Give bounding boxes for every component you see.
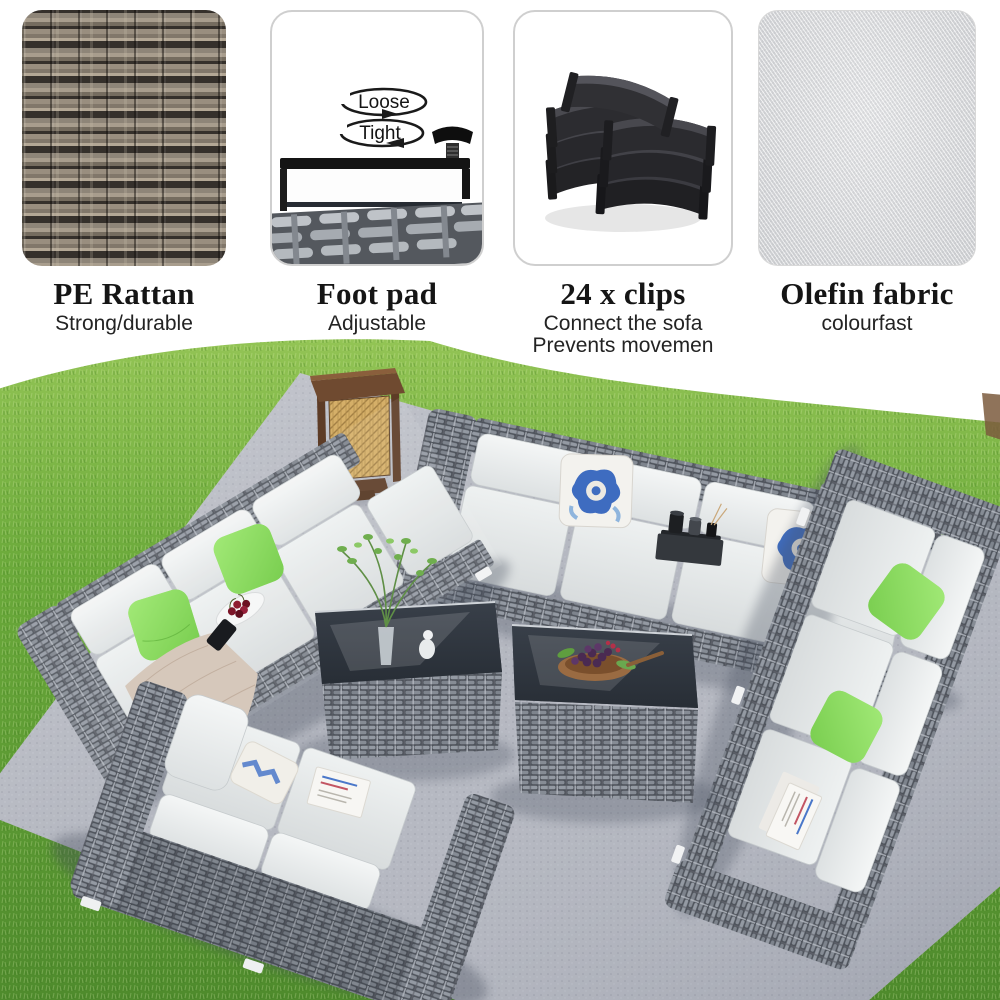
feature-title: Olefin fabric — [758, 278, 976, 309]
feature-title: 24 x clips — [513, 278, 733, 309]
feature-title: Foot pad — [270, 278, 484, 309]
foot-pad-bracket — [280, 158, 470, 211]
loose-label: Loose — [358, 92, 410, 113]
product-infographic: PE Rattan Strong/durable Loose Tight — [0, 0, 1000, 1000]
feature-subtitle: Connect the sofa — [513, 313, 733, 335]
feature-card-clips: 24 x clips Connect the sofa Prevents mov… — [513, 10, 733, 358]
feature-card-pe-rattan: PE Rattan Strong/durable — [22, 10, 226, 335]
feature-subtitle: colourfast — [758, 313, 976, 335]
clip-stack-front — [595, 115, 716, 220]
connector-clips-illustration — [515, 12, 731, 264]
feature-card-foot-pad: Loose Tight — [270, 10, 484, 335]
clips-swatch — [513, 10, 733, 266]
feature-card-olefin: Olefin fabric colourfast — [758, 10, 976, 335]
blue-pattern-pillow — [559, 454, 633, 528]
feature-title: PE Rattan — [22, 278, 226, 309]
patio-scene-photo — [0, 335, 1000, 1000]
tight-label: Tight — [359, 123, 401, 144]
rattan-weave-swatch — [22, 10, 226, 266]
coffee-table-fruit-bowl — [490, 625, 720, 823]
rattan-rail — [272, 202, 482, 264]
feature-subtitle: Adjustable — [270, 313, 484, 335]
foot-pad-swatch: Loose Tight — [270, 10, 484, 266]
olefin-fabric-swatch — [758, 10, 976, 266]
adjustment-knob-icon — [432, 127, 473, 160]
feature-subtitle: Strong/durable — [22, 313, 226, 335]
foot-pad-diagram: Loose Tight — [272, 12, 482, 264]
